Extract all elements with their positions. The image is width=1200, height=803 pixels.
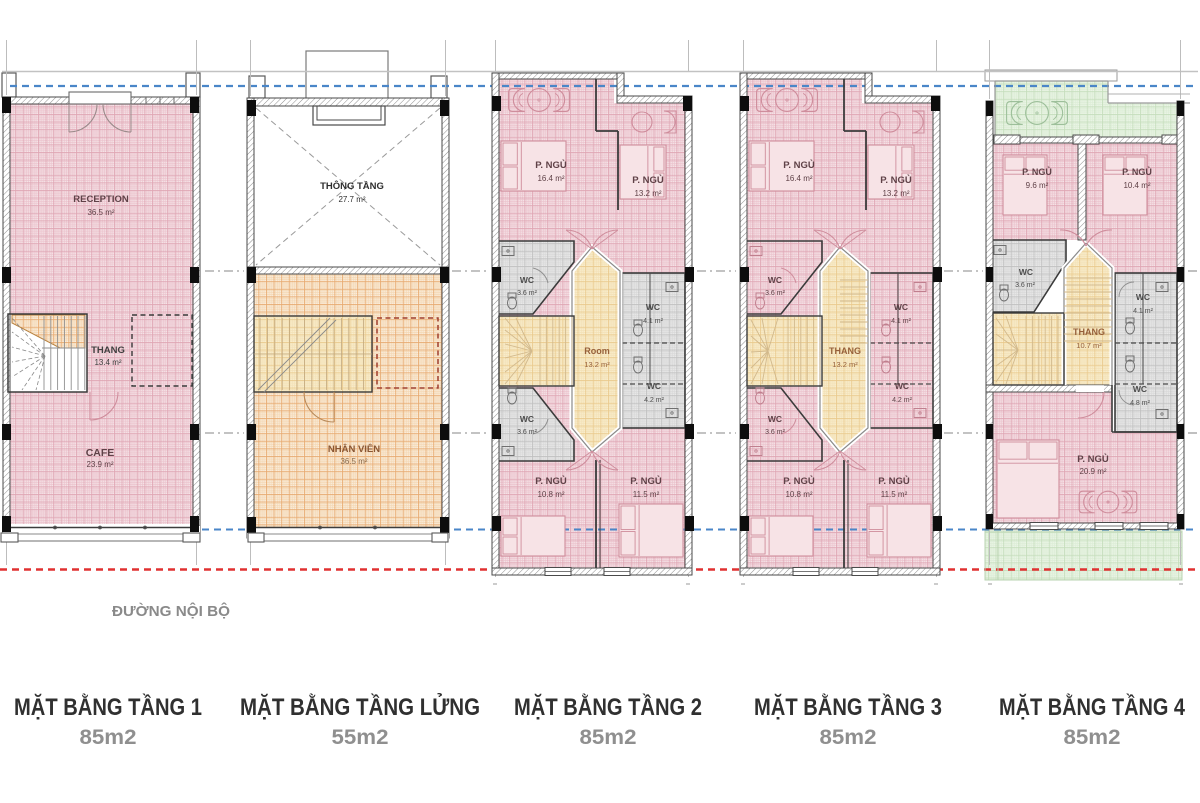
svg-text:16.4 m²: 16.4 m²: [785, 174, 812, 183]
svg-text:3.6 m²: 3.6 m²: [765, 429, 786, 436]
svg-text:MẶT BẰNG TẦNG 4: MẶT BẰNG TẦNG 4: [999, 693, 1186, 721]
svg-text:3.6 m²: 3.6 m²: [517, 290, 538, 297]
svg-text:WC: WC: [1133, 384, 1147, 394]
svg-text:MẶT BẰNG TẦNG 3: MẶT BẰNG TẦNG 3: [754, 693, 942, 721]
svg-text:MẶT BẰNG TẦNG 2: MẶT BẰNG TẦNG 2: [514, 693, 702, 721]
svg-text:85m2: 85m2: [80, 726, 137, 749]
svg-text:10.8 m²: 10.8 m²: [785, 490, 812, 499]
svg-text:THANG: THANG: [829, 346, 861, 356]
svg-text:WC: WC: [894, 302, 908, 312]
svg-text:3.6 m²: 3.6 m²: [517, 429, 538, 436]
svg-text:16.4 m²: 16.4 m²: [537, 174, 564, 183]
svg-text:4.2 m²: 4.2 m²: [892, 397, 913, 404]
svg-text:THANG: THANG: [1073, 327, 1105, 337]
svg-text:3.6 m²: 3.6 m²: [1015, 282, 1036, 289]
svg-text:36.5 m²: 36.5 m²: [87, 208, 114, 217]
svg-text:36.5 m²: 36.5 m²: [340, 457, 367, 466]
svg-text:P. NGỦ: P. NGỦ: [783, 159, 815, 171]
svg-text:23.9 m²: 23.9 m²: [86, 460, 113, 469]
svg-text:P. NGỦ: P. NGỦ: [878, 475, 910, 487]
svg-text:11.5 m²: 11.5 m²: [881, 490, 908, 499]
svg-text:WC: WC: [768, 414, 782, 424]
svg-text:85m2: 85m2: [820, 726, 877, 749]
svg-text:WC: WC: [768, 275, 782, 285]
svg-text:4.1 m²: 4.1 m²: [1133, 308, 1154, 315]
svg-text:P. NGỦ: P. NGỦ: [880, 174, 912, 186]
svg-text:20.9 m²: 20.9 m²: [1079, 467, 1106, 476]
svg-text:WC: WC: [520, 414, 534, 424]
svg-text:55m2: 55m2: [332, 726, 389, 749]
svg-text:WC: WC: [646, 302, 660, 312]
svg-text:11.5 m²: 11.5 m²: [633, 490, 660, 499]
svg-text:13.2 m²: 13.2 m²: [634, 189, 661, 198]
svg-text:CAFE: CAFE: [86, 447, 115, 459]
svg-text:RECEPTION: RECEPTION: [73, 194, 129, 205]
svg-text:WC: WC: [1136, 292, 1150, 302]
svg-text:P. NGỦ: P. NGỦ: [630, 475, 662, 487]
svg-text:4.8 m²: 4.8 m²: [1130, 400, 1151, 407]
svg-text:10.7 m²: 10.7 m²: [1076, 341, 1102, 350]
svg-text:9.6 m²: 9.6 m²: [1026, 181, 1049, 190]
svg-text:P. NGỦ: P. NGỦ: [1022, 166, 1052, 177]
svg-text:13.2 m²: 13.2 m²: [584, 360, 610, 369]
svg-text:WC: WC: [895, 381, 909, 391]
svg-text:4.1 m²: 4.1 m²: [643, 318, 664, 325]
svg-text:10.8 m²: 10.8 m²: [537, 490, 564, 499]
svg-text:13.2 m²: 13.2 m²: [882, 189, 909, 198]
svg-text:4.1 m²: 4.1 m²: [891, 318, 912, 325]
svg-text:P. NGỦ: P. NGỦ: [1122, 166, 1152, 177]
svg-text:10.4 m²: 10.4 m²: [1123, 181, 1150, 190]
svg-text:3.6 m²: 3.6 m²: [765, 290, 786, 297]
svg-text:85m2: 85m2: [580, 726, 637, 749]
svg-text:85m2: 85m2: [1064, 726, 1121, 749]
svg-text:WC: WC: [520, 275, 534, 285]
svg-text:P. NGỦ: P. NGỦ: [783, 475, 815, 487]
svg-text:NHÂN VIÊN: NHÂN VIÊN: [328, 443, 380, 455]
svg-text:ĐƯỜNG NỘI BỘ: ĐƯỜNG NỘI BỘ: [112, 602, 230, 620]
svg-text:THÔNG TẦNG: THÔNG TẦNG: [320, 180, 384, 192]
svg-text:THANG: THANG: [91, 345, 125, 356]
svg-text:P. NGỦ: P. NGỦ: [632, 174, 664, 186]
svg-text:13.4 m²: 13.4 m²: [94, 358, 121, 367]
svg-text:4.2 m²: 4.2 m²: [644, 397, 665, 404]
svg-text:P. NGỦ: P. NGỦ: [535, 159, 567, 171]
svg-text:13.2 m²: 13.2 m²: [832, 360, 858, 369]
svg-text:27.7 m²: 27.7 m²: [338, 195, 365, 204]
svg-text:MẶT BẰNG TẦNG LỬNG: MẶT BẰNG TẦNG LỬNG: [240, 692, 480, 721]
svg-text:WC: WC: [1019, 267, 1033, 277]
svg-text:P. NGỦ: P. NGỦ: [1077, 453, 1109, 465]
svg-text:WC: WC: [647, 381, 661, 391]
svg-text:Room: Room: [584, 346, 610, 356]
svg-text:P. NGỦ: P. NGỦ: [535, 475, 567, 487]
svg-text:MẶT BẰNG TẦNG 1: MẶT BẰNG TẦNG 1: [14, 693, 202, 721]
